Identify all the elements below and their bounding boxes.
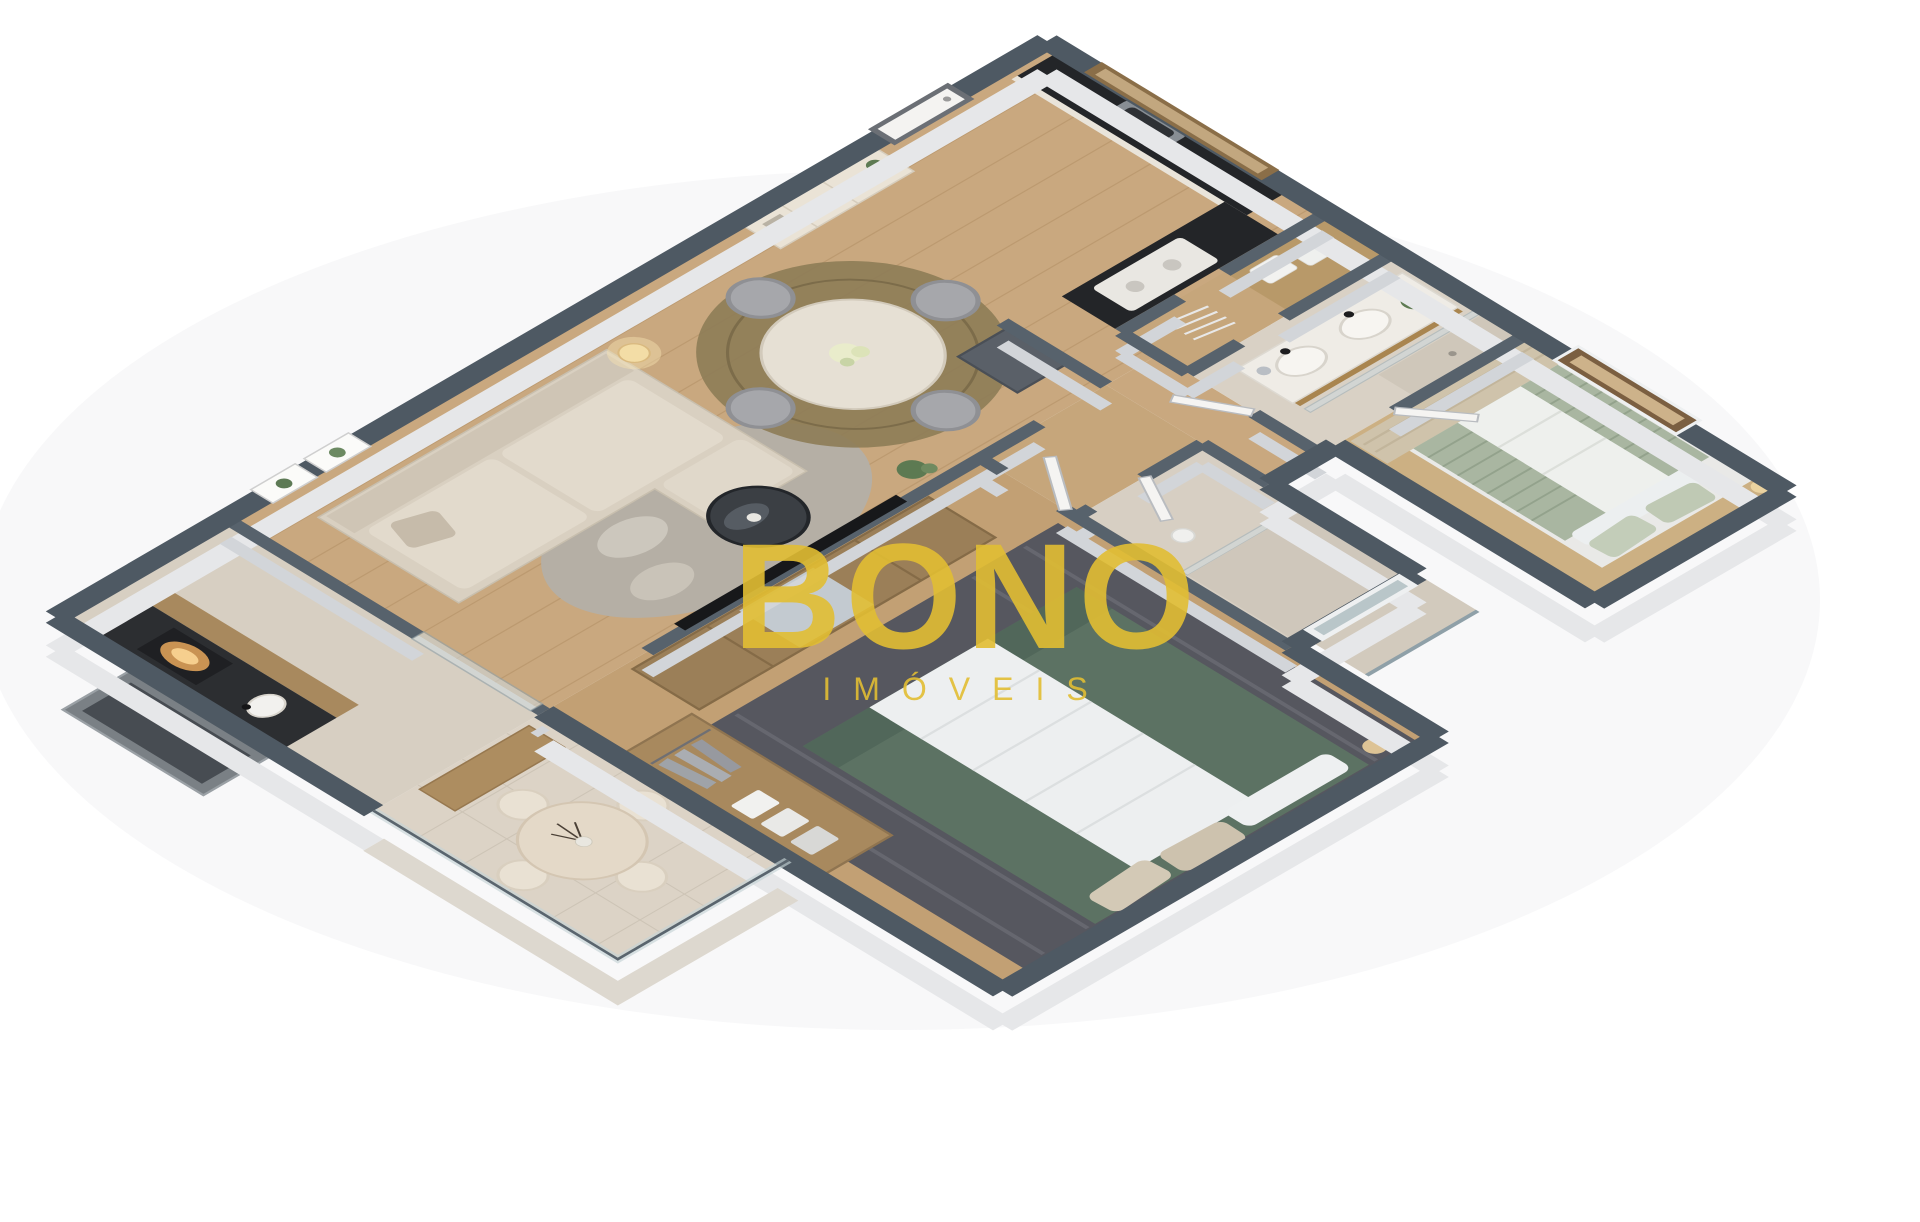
floorplan-3d-render: BONO IMÓVEIS xyxy=(0,0,1920,1222)
watermark-title: BONO xyxy=(733,512,1199,680)
watermark: BONO IMÓVEIS xyxy=(733,512,1199,707)
floorplan-screenshot: BONO IMÓVEIS xyxy=(0,0,1920,1222)
watermark-subtitle: IMÓVEIS xyxy=(822,671,1109,707)
